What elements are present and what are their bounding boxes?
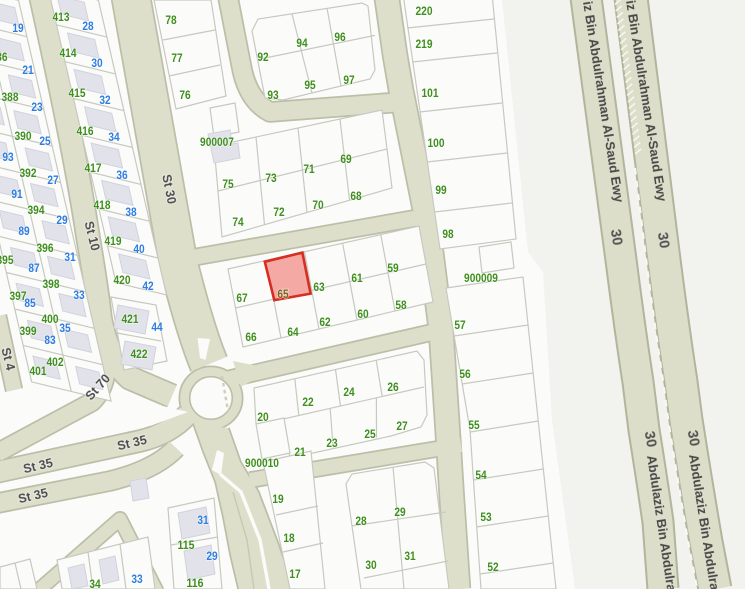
svg-text:78: 78 [165, 13, 176, 27]
svg-text:36: 36 [116, 168, 127, 182]
svg-text:115: 115 [178, 538, 195, 552]
svg-text:30: 30 [365, 558, 376, 572]
svg-text:57: 57 [454, 318, 465, 332]
svg-text:422: 422 [131, 347, 148, 361]
svg-text:23: 23 [31, 100, 42, 114]
svg-text:23: 23 [326, 436, 337, 450]
svg-text:400: 400 [42, 312, 59, 326]
svg-text:402: 402 [47, 355, 64, 369]
svg-text:55: 55 [468, 418, 479, 432]
svg-text:73: 73 [265, 171, 276, 185]
svg-text:33: 33 [131, 572, 142, 586]
svg-text:32: 32 [99, 93, 110, 107]
svg-text:58: 58 [395, 298, 406, 312]
svg-text:64: 64 [287, 325, 298, 339]
svg-text:19: 19 [272, 492, 283, 506]
svg-text:95: 95 [304, 78, 315, 92]
svg-text:35: 35 [59, 321, 70, 335]
svg-text:900010: 900010 [245, 456, 279, 470]
svg-text:101: 101 [422, 86, 439, 100]
svg-text:415: 415 [69, 86, 86, 100]
svg-text:30: 30 [641, 430, 660, 449]
svg-text:421: 421 [122, 312, 139, 326]
svg-text:87: 87 [28, 261, 39, 275]
svg-text:96: 96 [334, 30, 345, 44]
svg-text:386: 386 [0, 50, 8, 64]
svg-text:71: 71 [303, 162, 314, 176]
svg-text:42: 42 [142, 279, 153, 293]
svg-text:390: 390 [15, 129, 32, 143]
svg-text:116: 116 [187, 576, 204, 589]
svg-text:24: 24 [343, 385, 354, 399]
svg-text:92: 92 [257, 50, 268, 64]
svg-text:17: 17 [289, 567, 300, 581]
svg-text:29: 29 [394, 505, 405, 519]
svg-text:414: 414 [60, 46, 77, 60]
svg-text:63: 63 [313, 280, 324, 294]
svg-text:83: 83 [44, 333, 55, 347]
svg-text:94: 94 [296, 36, 307, 50]
svg-text:69: 69 [340, 152, 351, 166]
svg-text:220: 220 [416, 4, 433, 18]
svg-text:27: 27 [47, 173, 58, 187]
svg-text:392: 392 [20, 166, 37, 180]
svg-text:22: 22 [302, 395, 313, 409]
svg-text:33: 33 [73, 288, 84, 302]
svg-text:89: 89 [18, 224, 29, 238]
svg-text:97: 97 [343, 73, 354, 87]
svg-text:26: 26 [387, 380, 398, 394]
svg-text:61: 61 [351, 271, 362, 285]
svg-text:38: 38 [125, 205, 136, 219]
svg-text:31: 31 [404, 549, 415, 563]
svg-text:62: 62 [319, 315, 330, 329]
svg-text:900007: 900007 [200, 135, 234, 149]
svg-text:396: 396 [37, 241, 54, 255]
svg-text:93: 93 [267, 88, 278, 102]
svg-text:20: 20 [257, 410, 268, 424]
svg-text:34: 34 [108, 130, 119, 144]
svg-text:100: 100 [428, 136, 445, 150]
svg-text:18: 18 [283, 531, 294, 545]
svg-text:419: 419 [105, 234, 122, 248]
svg-text:93: 93 [2, 150, 13, 164]
svg-text:21: 21 [22, 63, 33, 77]
svg-text:31: 31 [197, 513, 208, 527]
svg-text:19: 19 [12, 21, 23, 35]
svg-text:401: 401 [30, 364, 47, 378]
svg-text:28: 28 [355, 514, 366, 528]
svg-text:91: 91 [11, 187, 22, 201]
svg-text:25: 25 [39, 134, 50, 148]
svg-text:395: 395 [0, 253, 14, 267]
svg-text:398: 398 [43, 277, 60, 291]
svg-text:67: 67 [236, 291, 247, 305]
svg-text:54: 54 [475, 468, 486, 482]
svg-text:413: 413 [53, 10, 70, 24]
svg-text:219: 219 [416, 37, 433, 51]
svg-text:74: 74 [232, 215, 243, 229]
svg-text:52: 52 [487, 560, 498, 574]
svg-text:76: 76 [179, 88, 190, 102]
svg-text:30: 30 [91, 56, 102, 70]
svg-text:28: 28 [82, 19, 93, 33]
svg-text:388: 388 [2, 90, 19, 104]
svg-text:29: 29 [56, 213, 67, 227]
svg-text:66: 66 [245, 330, 256, 344]
svg-text:399: 399 [20, 324, 37, 338]
svg-text:417: 417 [85, 161, 102, 175]
svg-text:394: 394 [28, 203, 45, 217]
svg-text:75: 75 [222, 177, 233, 191]
svg-text:420: 420 [114, 273, 131, 287]
svg-text:30: 30 [654, 231, 672, 249]
svg-text:29: 29 [206, 549, 217, 563]
svg-text:56: 56 [459, 367, 470, 381]
svg-text:27: 27 [396, 419, 407, 433]
svg-text:40: 40 [133, 242, 144, 256]
svg-text:99: 99 [435, 183, 446, 197]
svg-text:53: 53 [480, 510, 491, 524]
svg-text:416: 416 [77, 124, 94, 138]
svg-text:25: 25 [364, 427, 375, 441]
svg-text:98: 98 [442, 227, 453, 241]
svg-text:60: 60 [357, 307, 368, 321]
svg-text:85: 85 [24, 296, 35, 310]
svg-text:65: 65 [277, 287, 288, 301]
svg-text:418: 418 [94, 198, 111, 212]
svg-text:900009: 900009 [464, 271, 498, 285]
svg-text:21: 21 [294, 445, 305, 459]
svg-text:44: 44 [151, 320, 162, 334]
svg-text:70: 70 [312, 198, 323, 212]
svg-text:31: 31 [64, 250, 75, 264]
svg-text:30: 30 [684, 429, 703, 448]
svg-text:34: 34 [89, 577, 100, 589]
svg-text:68: 68 [350, 189, 361, 203]
svg-text:77: 77 [171, 51, 182, 65]
svg-text:59: 59 [387, 261, 398, 275]
svg-text:72: 72 [273, 205, 284, 219]
svg-text:30: 30 [607, 228, 625, 246]
